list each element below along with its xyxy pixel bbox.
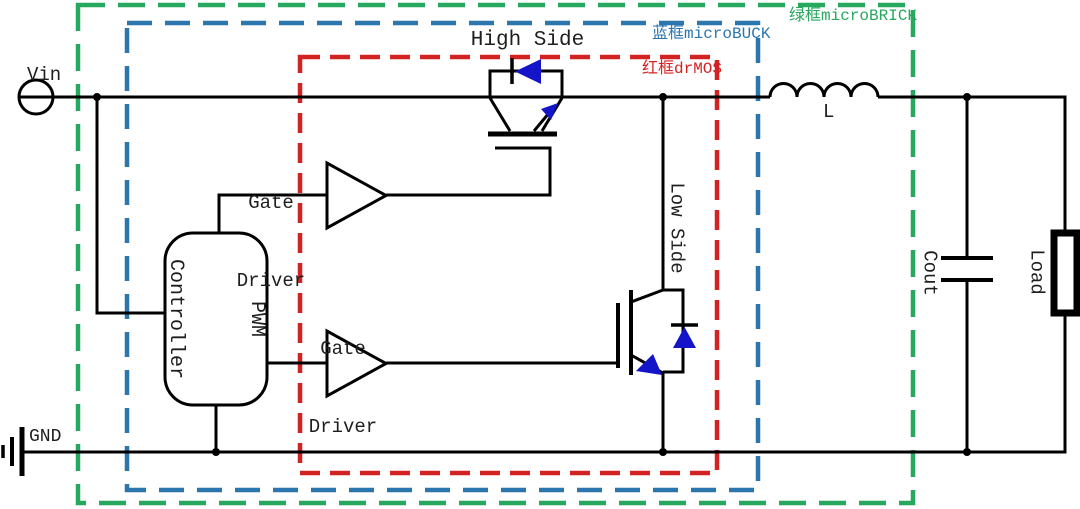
gate-driver-low-line2: Driver <box>305 414 381 440</box>
wire-driver-high-to-gate <box>386 148 550 195</box>
inductor-icon <box>770 84 878 98</box>
hs-body-diode-icon <box>515 59 541 84</box>
cout-label: Cout <box>918 250 941 296</box>
high-side-label: High Side <box>470 28 585 53</box>
ls-arrow-icon <box>636 354 662 375</box>
load-resistor-icon <box>1054 233 1077 313</box>
low-side-label: Low Side <box>665 182 688 273</box>
frame-label-microbrick: 绿框microBRICK <box>789 7 917 26</box>
junction-dot <box>659 448 667 456</box>
junction-dot <box>963 93 971 101</box>
junction-dot <box>659 93 667 101</box>
junction-dot <box>212 448 220 456</box>
gnd-symbol-icon <box>3 427 22 476</box>
inductor-label: L <box>823 101 834 124</box>
vin-label: Vin <box>27 64 61 87</box>
cout-capacitor-icon <box>941 258 993 280</box>
junction-dot <box>963 448 971 456</box>
frame-label-drmos: 红框drMOS <box>642 60 722 79</box>
gate-driver-high-icon <box>327 163 386 228</box>
gate-driver-high-line1: Gate <box>233 190 309 216</box>
pwm-controller-label: PWM Controller <box>108 259 324 379</box>
pwm-line1: PWM <box>243 259 270 379</box>
frame-label-microbuck: 蓝框microBUCK <box>652 25 770 44</box>
gnd-label: GND <box>29 427 61 449</box>
load-label: Load <box>1025 249 1048 295</box>
wire-driver-low-to-gate <box>386 303 618 363</box>
ls-body-diode-icon <box>673 327 696 348</box>
low-side-switch-icon <box>618 290 698 375</box>
junction-dot <box>93 93 101 101</box>
pwm-line2: Controller <box>162 259 189 379</box>
circuit-diagram: Vin GND High Side Gate Driver Gate Drive… <box>0 0 1080 509</box>
wire-to-load-top <box>878 97 1065 233</box>
